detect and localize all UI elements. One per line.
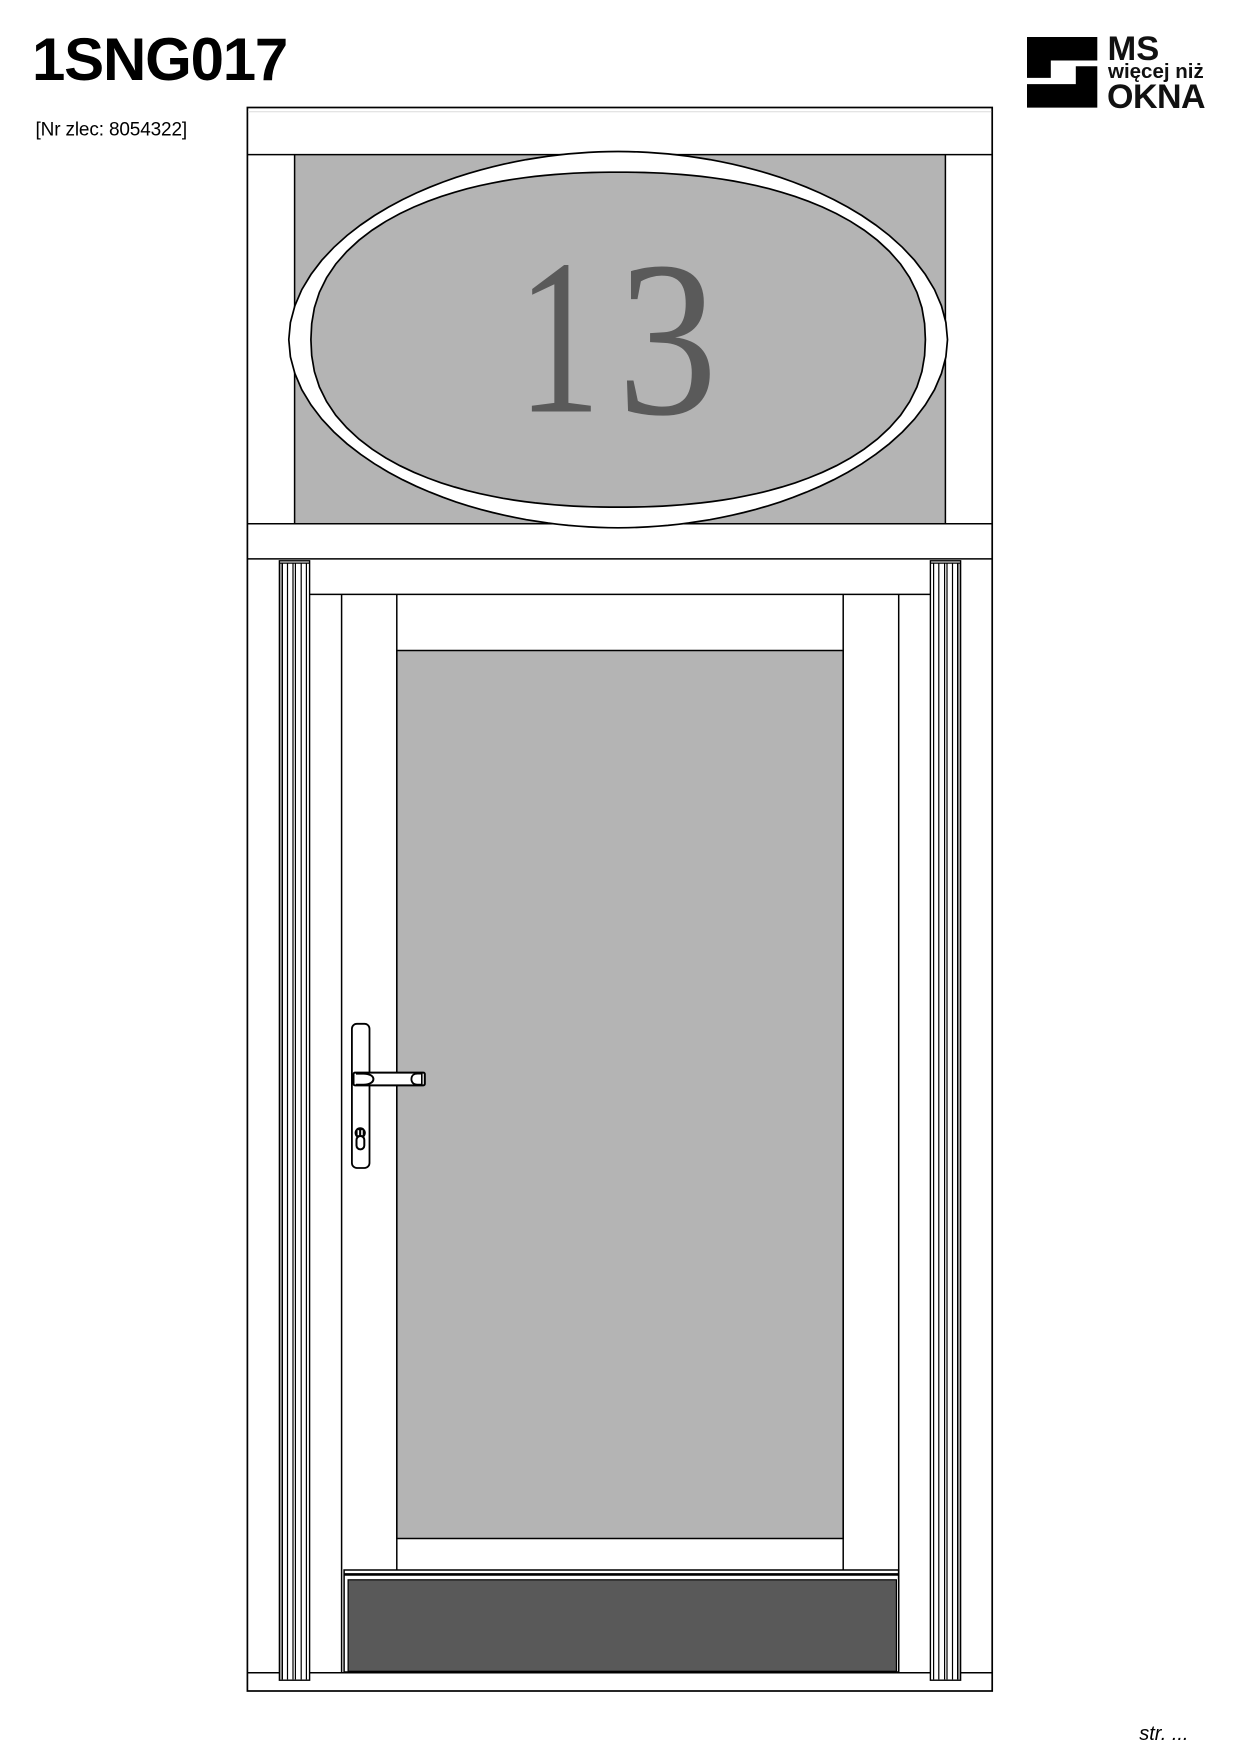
svg-text:1: 1 bbox=[517, 214, 601, 460]
svg-text:[Nr zlec: 8054322]: [Nr zlec: 8054322] bbox=[36, 120, 188, 141]
svg-text:str. ...: str. ... bbox=[1139, 1723, 1188, 1745]
svg-text:3: 3 bbox=[617, 216, 717, 462]
svg-text:1SNG017: 1SNG017 bbox=[32, 26, 287, 93]
svg-text:OKNA: OKNA bbox=[1107, 78, 1205, 116]
